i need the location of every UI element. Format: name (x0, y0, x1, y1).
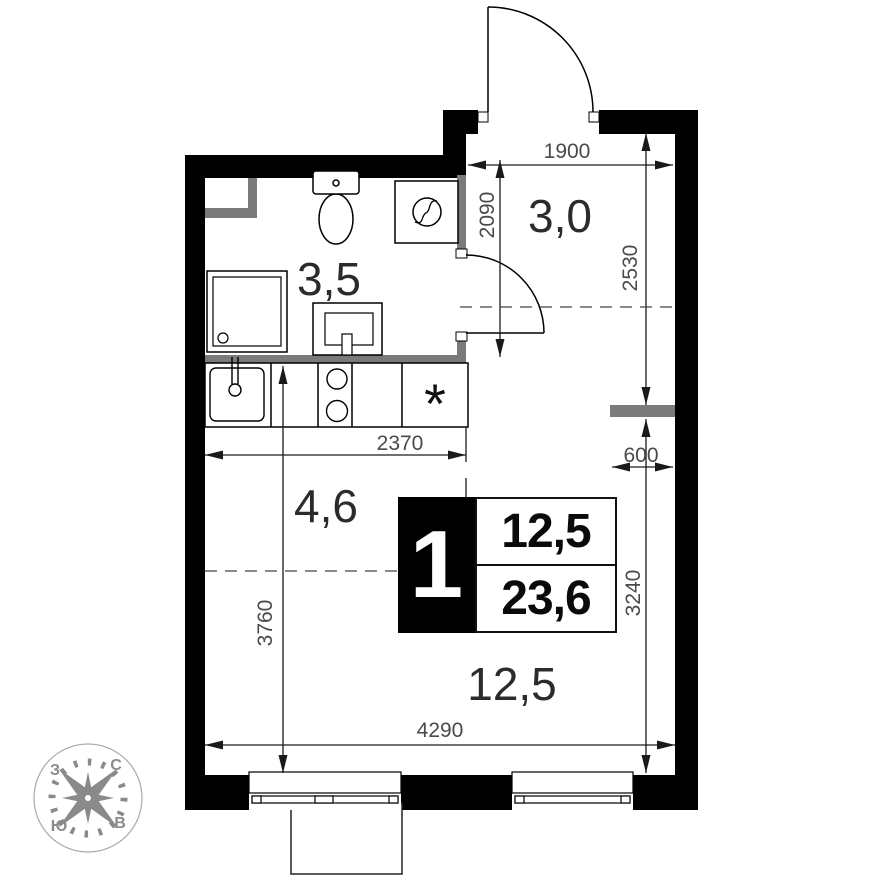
floor-plan: 3,5 3,0 4,6 12,5 * 1 12,5 23,6 1900 2090… (0, 0, 880, 880)
bathroom-door (466, 255, 544, 333)
dim-label-living-width: 4290 (417, 719, 464, 743)
compass-south-label: Ю (51, 818, 68, 836)
window-left (249, 772, 401, 810)
toilet-icon (313, 171, 359, 244)
room-label-kitchen: 4,6 (294, 479, 358, 533)
unit-total-area: 23,6 (477, 564, 615, 631)
washbasin-icon (313, 303, 382, 355)
entry-door (488, 7, 593, 112)
dim-label-stub-width: 600 (623, 444, 658, 468)
dim-label-hall-length: 2530 (619, 245, 643, 292)
unit-areas: 12,5 23,6 (475, 497, 617, 633)
unit-room-count: 1 (398, 497, 475, 633)
washing-machine-icon (395, 181, 458, 243)
balcony (291, 803, 402, 874)
room-label-living-room: 12,5 (467, 657, 557, 711)
compass-west-label: З (50, 762, 60, 780)
compass-north-label: С (110, 757, 122, 775)
window-right (512, 772, 633, 810)
shower-tray-icon (207, 271, 287, 352)
dim-label-hall-depth: 2090 (476, 192, 500, 239)
dim-label-entry-width: 1900 (544, 140, 591, 164)
dim-label-kitchen-width: 2370 (377, 432, 424, 456)
room-label-bathroom: 3,5 (297, 252, 361, 306)
dim-label-living-depth: 3760 (254, 600, 278, 647)
fridge-asterisk-icon: * (402, 376, 468, 432)
floor-plan-drawing (0, 0, 880, 880)
room-label-hallway: 3,0 (528, 189, 592, 243)
unit-info-block: 1 12,5 23,6 (398, 497, 617, 633)
compass-rose-icon (29, 739, 148, 858)
unit-living-area: 12,5 (477, 499, 615, 564)
dim-label-living-right-depth: 3240 (622, 570, 646, 617)
compass-east-label: В (114, 815, 126, 833)
